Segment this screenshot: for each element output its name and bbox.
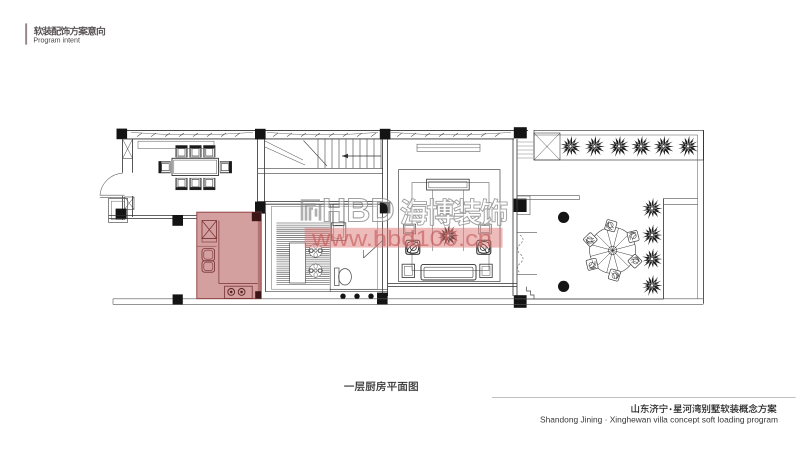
svg-text:www.hbd100.cn: www.hbd100.cn (311, 226, 492, 251)
svg-text:Shandong Jining · Xinghewan vi: Shandong Jining · Xinghewan villa concep… (540, 414, 778, 424)
svg-text:HBD: HBD (322, 192, 395, 229)
svg-text:Program intent: Program intent (33, 37, 80, 45)
